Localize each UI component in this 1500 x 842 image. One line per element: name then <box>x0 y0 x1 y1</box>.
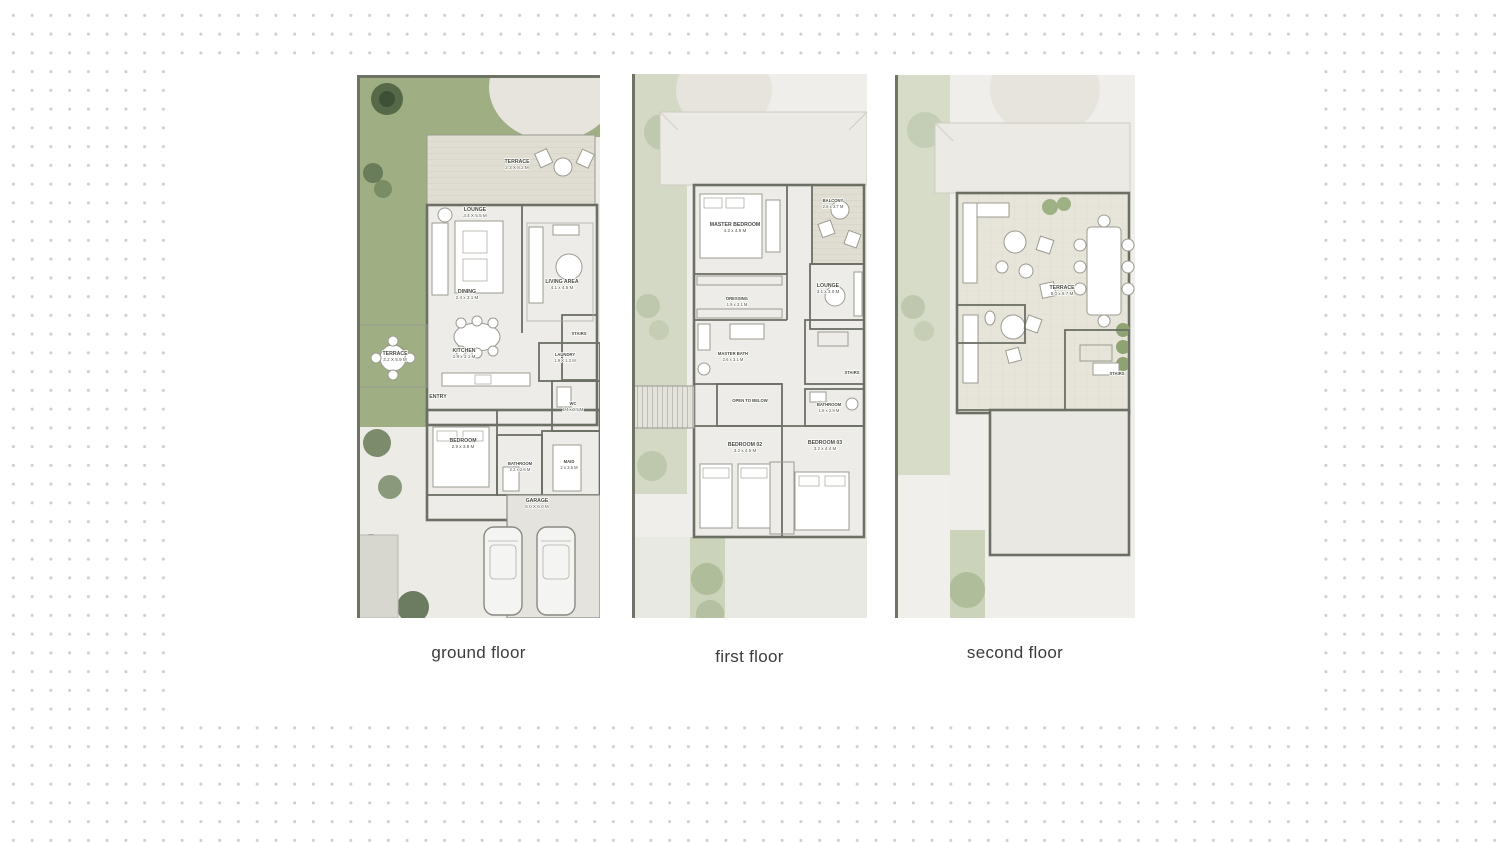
second-floor-drawing: TERRACE 8.0 x 6.7 M STAIRS <box>895 75 1135 618</box>
room-dims: 1.9 x 3.1 M <box>727 302 748 307</box>
first-floor-drawing: MASTER BEDROOM 4.2 x 4.9 M BALCONY 2.5 x… <box>632 74 867 618</box>
first-floor-plan: MASTER BEDROOM 4.2 x 4.9 M BALCONY 2.5 x… <box>632 74 867 618</box>
second-terrace <box>957 193 1134 413</box>
room-label: STAIRS <box>1109 371 1124 376</box>
first-floor-caption: first floor <box>632 647 867 671</box>
room-dims: 2.2 x 2.6 M <box>510 467 531 472</box>
room-dims: 2.3 X 8.2 M <box>505 165 529 170</box>
room-dims: 1.9 X 1.2 M <box>554 358 576 363</box>
page: { "background": { "dot_color": "#d0d0d0"… <box>0 0 1500 842</box>
room-label: STAIRS <box>571 331 586 336</box>
room-dims: 2 x 3.5 M <box>560 465 578 470</box>
first-roof <box>660 112 867 185</box>
room-dims: 8.0 x 6.7 M <box>1051 291 1074 296</box>
room-label: OPEN TO BELOW <box>732 398 768 403</box>
room-label: BATHROOM <box>817 402 842 407</box>
room-dims: 3.4 X 5.5 M <box>463 213 487 218</box>
room-dims: 6.0 X 6.0 M <box>525 504 549 509</box>
room-dims: 2.5 x 3.7 M <box>823 204 844 209</box>
room-label: MASTER BATH <box>718 351 748 356</box>
second-floor-plan: TERRACE 8.0 x 6.7 M STAIRS <box>895 75 1135 618</box>
room-label: BALCONY <box>823 198 844 203</box>
room-label: DRESSING <box>726 296 748 301</box>
room-dims: 4.2 x 4.9 M <box>724 228 747 233</box>
room-label: LAUNDRY <box>555 352 576 357</box>
room-label: WC <box>570 401 577 406</box>
room-label: BATHROOM <box>508 461 533 466</box>
ground-floor-caption: ground floor <box>357 643 600 667</box>
room-dims: 3.1 x 3.0 M <box>817 289 840 294</box>
second-floor-caption: second floor <box>895 643 1135 667</box>
ground-floor-drawing: TERRACE 2.3 X 8.2 M LOUNGE 3.4 X 5.5 M L… <box>357 75 600 618</box>
room-dims: 1.4 x 2.5 M <box>563 407 584 412</box>
room-dims: 1.8 x 2.9 M <box>819 408 840 413</box>
room-dims: 2.4 x 3.1 M <box>456 295 479 300</box>
room-dims: 3.2 X 5.9 M <box>383 357 407 362</box>
ground-floor-plan: TERRACE 2.3 X 8.2 M LOUNGE 3.4 X 5.5 M L… <box>357 75 600 618</box>
room-dims: 2.9 x 3.8 M <box>452 444 475 449</box>
room-dims: 3.2 x 4.4 M <box>814 446 837 451</box>
room-label: ENTRY <box>429 394 447 400</box>
room-dims: 2.6 x 3.1 M <box>723 357 744 362</box>
room-dims: 3.2 x 4.5 M <box>734 448 757 453</box>
room-dims: 2.8 x 3.1 M <box>453 354 476 359</box>
room-label: STAIRS <box>844 370 859 375</box>
room-label: MAID <box>564 459 575 464</box>
ground-terrace-top <box>427 135 595 205</box>
second-roof <box>935 123 1130 193</box>
room-dims: 4.1 x 4.5 M <box>551 285 574 290</box>
